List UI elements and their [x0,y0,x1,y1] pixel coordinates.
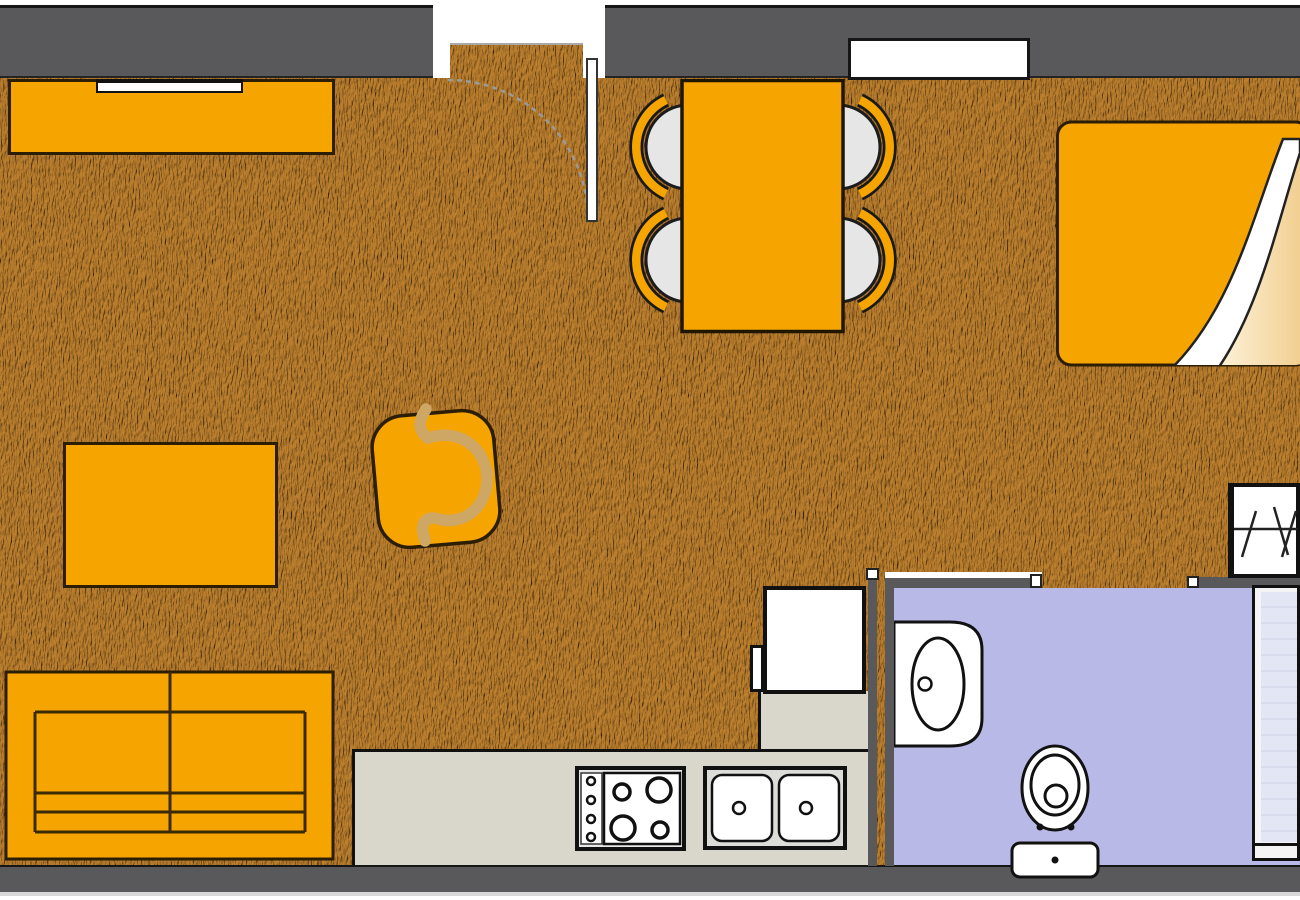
sofa [4,669,336,863]
wardrobe-hanger-marks [1234,487,1298,574]
armchair [365,403,505,555]
toilet [1010,743,1102,880]
top-wall-left [0,5,433,78]
shower-glass [1261,592,1297,842]
bathroom-wall-top-left [885,572,1042,588]
bathroom-door-jamb-left [1030,574,1042,588]
wardrobe [1228,483,1300,578]
washbasin [894,616,986,750]
coffee-table [63,442,278,588]
entry-door-leaf [586,58,598,222]
door-swing-arc [443,73,595,225]
refrigerator [763,586,866,694]
dining-set [610,79,900,335]
bottom-wall [0,865,1300,896]
kitchen-counter-upper [758,691,868,751]
tv [96,79,243,93]
bathroom-wall-left [885,588,894,866]
floor-plan [0,0,1300,900]
fridge-handle [750,645,764,692]
shower-edge-line [1255,843,1297,846]
stove [575,766,686,851]
kitchen-partition-wall [868,578,877,866]
kitchen-wall-cap [866,568,879,580]
bed [1056,120,1300,367]
window [848,38,1030,80]
kitchen-sink [703,766,847,850]
basin-drain [919,678,932,691]
threshold-line [450,43,583,45]
shower [1252,585,1300,861]
dining-table [682,81,843,332]
bathroom-door-jamb-right [1187,576,1199,588]
